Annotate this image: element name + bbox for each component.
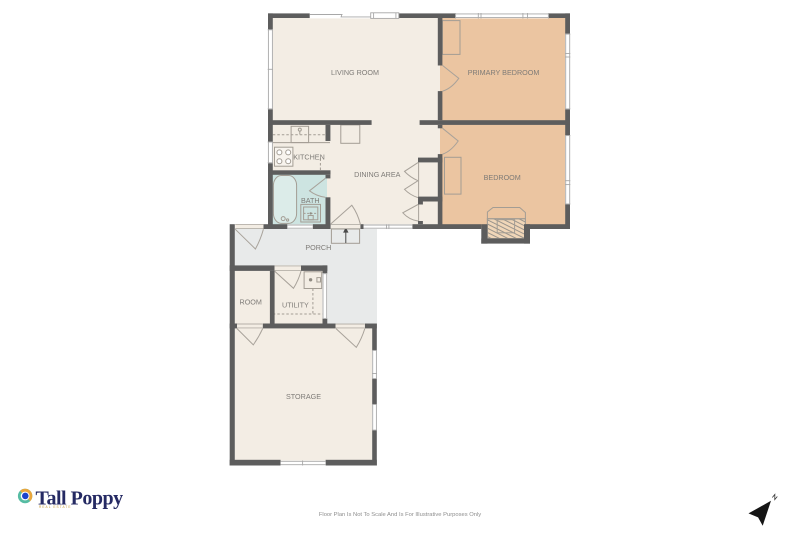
svg-text:KITCHEN: KITCHEN bbox=[293, 153, 325, 162]
svg-text:LIVING ROOM: LIVING ROOM bbox=[331, 68, 379, 77]
svg-text:BATH: BATH bbox=[301, 196, 320, 205]
svg-text:ROOM: ROOM bbox=[240, 297, 262, 306]
svg-text:PRIMARY BEDROOM: PRIMARY BEDROOM bbox=[468, 68, 540, 77]
svg-text:BEDROOM: BEDROOM bbox=[484, 173, 521, 182]
svg-text:DINING AREA: DINING AREA bbox=[354, 170, 401, 179]
svg-text:UTILITY: UTILITY bbox=[282, 301, 309, 310]
svg-text:Floor Plan Is Not To Scale And: Floor Plan Is Not To Scale And Is For Il… bbox=[319, 512, 481, 518]
svg-text:REAL ESTATE: REAL ESTATE bbox=[39, 505, 72, 509]
svg-text:PORCH: PORCH bbox=[305, 243, 331, 252]
svg-text:STORAGE: STORAGE bbox=[286, 392, 321, 401]
